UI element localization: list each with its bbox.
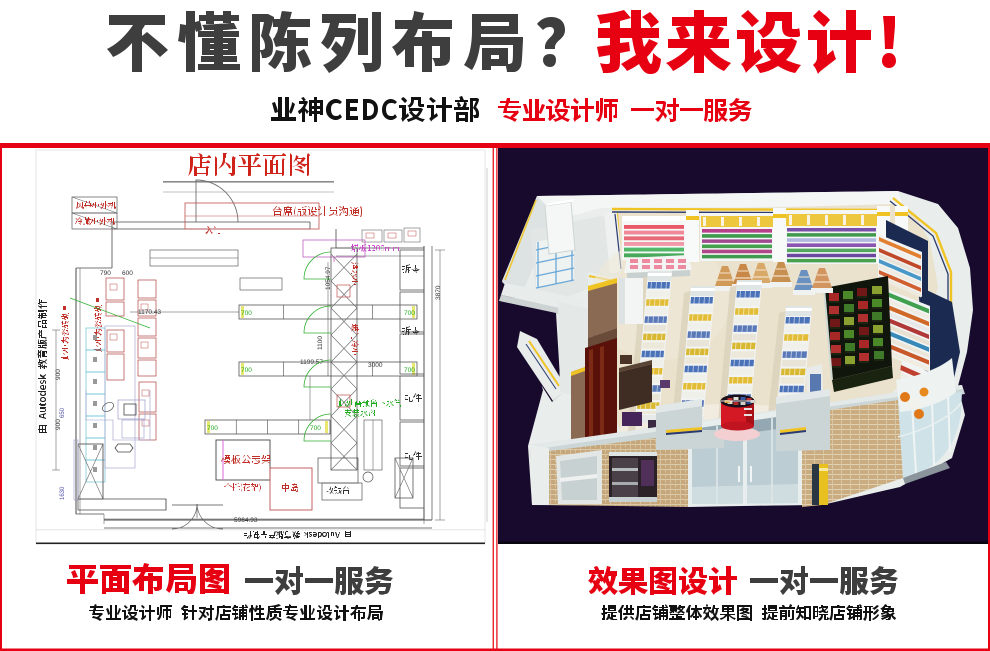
svg-text:700: 700 bbox=[310, 425, 321, 432]
svg-text:3000: 3000 bbox=[368, 362, 383, 369]
svg-text:1630: 1630 bbox=[60, 486, 66, 500]
svg-text:1170.43: 1170.43 bbox=[138, 309, 161, 316]
svg-text:700: 700 bbox=[404, 367, 415, 374]
svg-text:790: 790 bbox=[100, 270, 111, 277]
svg-text:650: 650 bbox=[60, 407, 66, 418]
svg-text:5964.93: 5964.93 bbox=[234, 517, 258, 524]
svg-text:600: 600 bbox=[122, 270, 133, 277]
svg-text:1100: 1100 bbox=[317, 336, 324, 350]
svg-text:700: 700 bbox=[207, 425, 218, 432]
svg-text:700: 700 bbox=[241, 310, 252, 317]
svg-text:700: 700 bbox=[404, 310, 415, 317]
svg-text:700: 700 bbox=[241, 367, 252, 374]
svg-text:3870: 3870 bbox=[435, 285, 442, 300]
